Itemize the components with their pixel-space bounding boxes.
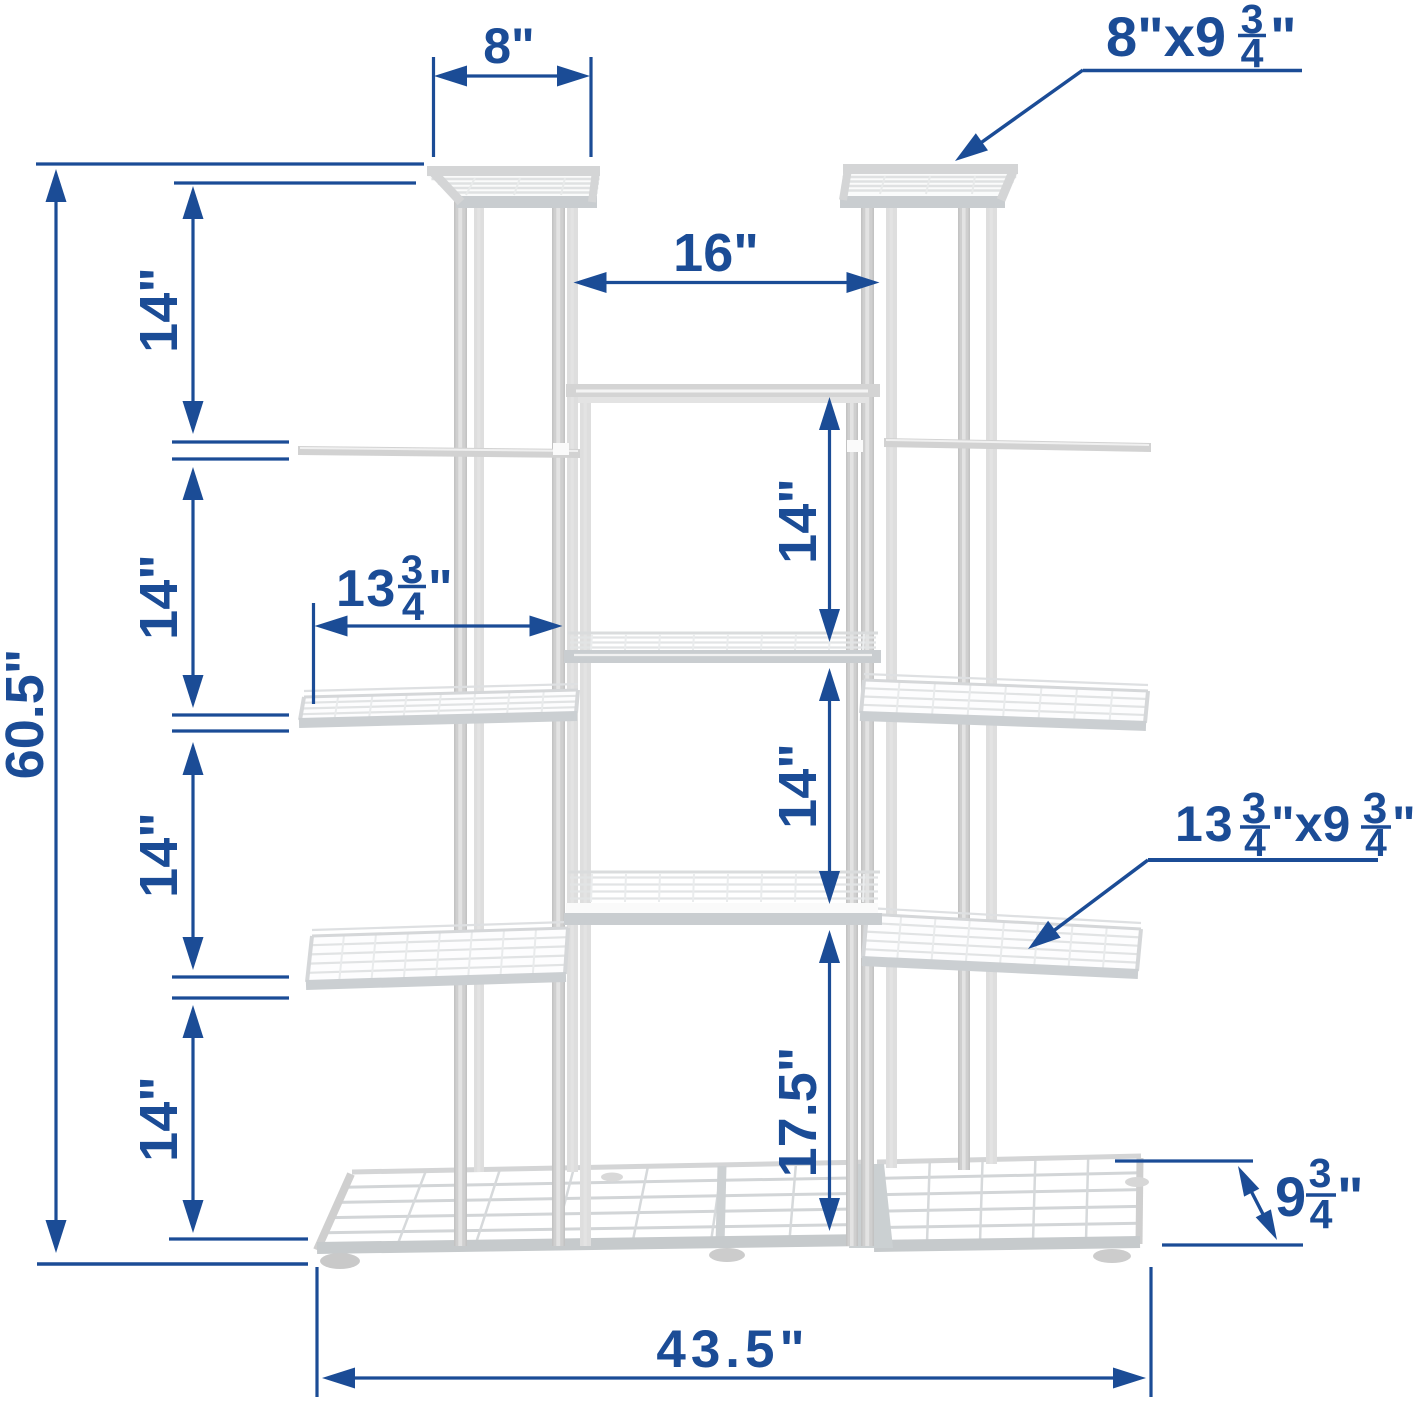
svg-text:14": 14" xyxy=(129,554,189,640)
svg-text:60.5": 60.5" xyxy=(0,649,55,780)
svg-text:17.5": 17.5" xyxy=(768,1047,828,1178)
svg-text:13: 13 xyxy=(336,560,397,618)
svg-text:9: 9 xyxy=(1275,1165,1306,1228)
svg-text:13: 13 xyxy=(1175,796,1235,852)
svg-text:4: 4 xyxy=(402,585,425,629)
svg-text:16": 16" xyxy=(673,223,759,283)
svg-text:3: 3 xyxy=(1309,1150,1332,1196)
svg-text:": " xyxy=(1392,796,1416,852)
svg-text:14": 14" xyxy=(768,743,828,829)
svg-text:"x9: "x9 xyxy=(1271,796,1350,852)
svg-text:": " xyxy=(1337,1165,1364,1228)
svg-text:4: 4 xyxy=(1310,1191,1333,1237)
svg-text:8"x9: 8"x9 xyxy=(1106,5,1226,68)
svg-text:": " xyxy=(428,560,453,618)
svg-text:": " xyxy=(1270,5,1297,68)
svg-text:14": 14" xyxy=(129,267,189,353)
svg-text:43.5": 43.5" xyxy=(656,1320,809,1379)
svg-text:14": 14" xyxy=(129,1076,189,1162)
svg-text:14": 14" xyxy=(129,812,189,898)
svg-text:14": 14" xyxy=(768,478,828,564)
svg-text:8": 8" xyxy=(483,18,535,74)
